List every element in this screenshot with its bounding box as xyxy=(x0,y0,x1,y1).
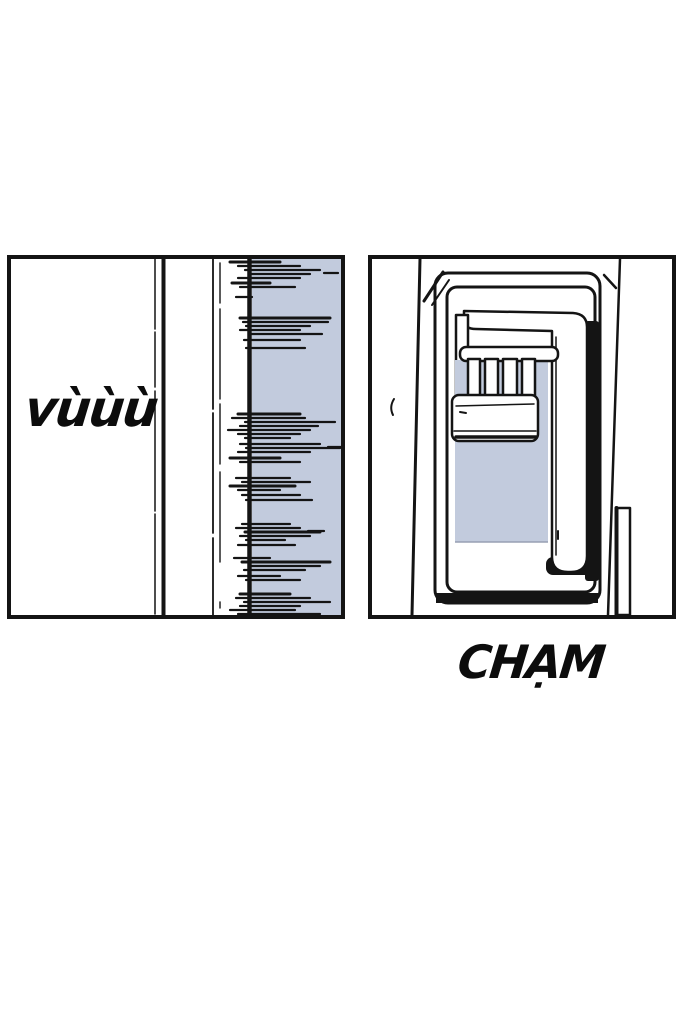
door-latch-drawing xyxy=(372,259,672,615)
manga-panel-left: vùùù xyxy=(7,255,345,619)
wall-edge-line xyxy=(391,259,420,615)
frame-bottom-shadow xyxy=(436,593,598,603)
wall-vertical-lines xyxy=(155,259,250,615)
manga-panel-right xyxy=(368,255,676,619)
sfx-vuuu: vùùù xyxy=(22,384,159,434)
comic-page: { "page": {"width": 700, "height": 1018,… xyxy=(0,0,700,1018)
right-wall-lines xyxy=(608,259,630,615)
handle-plate xyxy=(452,395,538,441)
sfx-cham: CHẠM xyxy=(456,639,606,685)
